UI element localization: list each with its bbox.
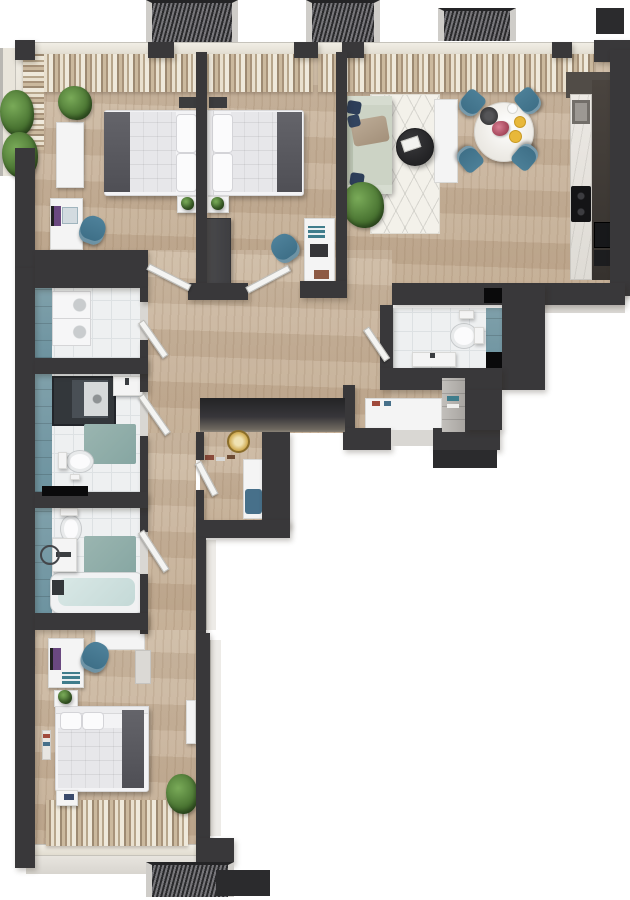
- bedroom2-pillow: [212, 114, 233, 153]
- bedroom2-nightstand-plant-icon: [211, 197, 224, 210]
- floor-plan-scene: [0, 0, 630, 900]
- shelf-item-icon: [447, 404, 459, 408]
- bedroom3-side-unit: [135, 650, 151, 684]
- bedroom2-ledge-tray: [209, 97, 227, 108]
- dryer-icon: [52, 318, 91, 346]
- wall-east: [610, 50, 630, 296]
- toilet-brush-icon: [70, 474, 80, 480]
- bedroom1-pillow: [176, 153, 197, 192]
- wall-pier: [294, 42, 318, 58]
- wall-corridor-west-3: [140, 436, 148, 532]
- laundry-teal-wall: [35, 288, 52, 358]
- wc-cistern: [459, 310, 474, 319]
- magazine-icon: [43, 734, 50, 738]
- balcony-plant-icon: [0, 90, 34, 136]
- faucet-icon: [430, 353, 435, 358]
- top-balcony-3: [438, 8, 516, 41]
- kitchen-cooktop: [571, 186, 591, 222]
- wall-wc-south: [380, 368, 502, 390]
- bottom-balcony-slab: [216, 870, 270, 896]
- washer-icon: [52, 291, 91, 319]
- bathroom1-toilet: [66, 450, 94, 473]
- bedroom1-bed-throw: [104, 112, 130, 192]
- bedroom2-laptop-icon: [310, 244, 328, 257]
- corridor-floor: [148, 433, 196, 635]
- wc-toilet-tank: [474, 327, 484, 344]
- top-balcony-2: [306, 0, 380, 45]
- plate-icon: [507, 103, 518, 114]
- wall-bedroom1-south: [35, 250, 148, 288]
- bathtub-basin: [58, 578, 135, 606]
- bench-cushion: [245, 489, 262, 514]
- bedroom1-monitor-icon: [51, 206, 61, 226]
- bedroom3-pillow: [60, 712, 82, 730]
- bedroom1-dresser: [56, 122, 84, 188]
- bedroom1-ledge-tray: [179, 97, 197, 108]
- wall-vestibule-east: [262, 432, 290, 528]
- wall-pier: [148, 42, 174, 58]
- wall-bedroom3-corner: [196, 838, 234, 864]
- tv-sideboard: [434, 99, 458, 183]
- microwave-icon: [594, 250, 610, 266]
- bathroom1-toilet-tank: [58, 452, 67, 469]
- wall-entry-east-block: [465, 390, 502, 430]
- wall-entry-south-w: [343, 428, 391, 450]
- magazine-icon: [43, 742, 50, 746]
- shelf-item-icon: [447, 396, 459, 401]
- bedroom3-nightstand-plant-icon: [58, 690, 72, 704]
- wall-west-upper: [15, 148, 35, 268]
- top-right-ledge: [596, 8, 624, 34]
- bedroom3-monitor-icon: [50, 648, 61, 670]
- living-curtains: [318, 54, 594, 92]
- decor-item-icon: [384, 401, 391, 406]
- book-icon: [64, 794, 74, 800]
- bedroom3-books-icon: [62, 672, 80, 684]
- exterior-sliver: [206, 540, 216, 630]
- bedroom2-book-icon: [314, 270, 329, 279]
- bathroom1-teal-wall: [35, 374, 52, 492]
- wall-vestibule-south: [196, 520, 290, 538]
- wall-bath2-bedroom3: [35, 613, 148, 630]
- bathroom2-toilet-tank: [60, 508, 78, 516]
- bedroom3-bed-duvet: [58, 728, 122, 788]
- bedroom2-bed-duvet: [231, 112, 277, 192]
- exterior-sliver: [210, 640, 221, 836]
- bedroom3-pillow: [82, 712, 104, 730]
- wall-bedroom3-east: [196, 633, 210, 858]
- wall-bedroom2-south-w: [188, 283, 248, 300]
- shoe-icon: [216, 457, 225, 461]
- bedroom3-plant-icon: [166, 774, 198, 814]
- shoe-icon: [205, 455, 214, 460]
- wall-bedroom2-south-e: [300, 281, 347, 298]
- wall-pier: [552, 42, 572, 58]
- bedroom1-laptop-icon: [62, 207, 78, 224]
- wall-laundry-bath1: [35, 358, 148, 374]
- faucet-icon: [125, 378, 129, 385]
- bedroom2-wardrobe: [204, 218, 231, 288]
- duct-shaft: [484, 288, 502, 303]
- living-plant-icon: [342, 182, 384, 228]
- bedroom3-bed-throw: [122, 710, 144, 788]
- wall-vestibule-west-1: [196, 432, 204, 460]
- wall-bedroom2-living: [336, 52, 347, 282]
- decor-item-icon: [372, 401, 380, 406]
- wall-west-column: [15, 268, 35, 868]
- bedroom1-nightstand-plant-icon: [181, 197, 194, 210]
- hall-built-in-closet: [200, 398, 345, 432]
- plate-icon: [514, 116, 526, 128]
- shower-tray: [84, 382, 108, 416]
- wall-corridor-east-low: [196, 538, 206, 635]
- plate-icon: [509, 130, 522, 143]
- bedroom1-plant-icon: [58, 86, 92, 120]
- bathtub-faucet-icon: [52, 580, 64, 595]
- bedroom1-bed-duvet: [130, 112, 176, 192]
- kitchen-sink: [572, 100, 590, 124]
- wall-corner-nw: [15, 40, 35, 60]
- bedroom2-bed-throw: [277, 112, 302, 192]
- bedroom1-pillow: [176, 114, 197, 153]
- entry-door-threshold: [391, 430, 433, 446]
- bedroom2-pillow: [212, 153, 233, 192]
- bedroom3-curtains: [46, 800, 188, 846]
- wall-corridor-west-1: [140, 288, 148, 302]
- bedrooms-curtains: [23, 54, 313, 92]
- bedroom3-sideboard: [186, 700, 196, 744]
- duct-shaft: [486, 352, 502, 368]
- navy-pillow-icon: [346, 100, 362, 115]
- towel-ring-icon: [40, 545, 60, 565]
- entry-porch-stub: [433, 450, 497, 468]
- shoe-icon: [227, 455, 235, 459]
- wall-bedroom-divider: [196, 52, 207, 283]
- wall-wc-east-block: [502, 285, 545, 390]
- wall-niche: [42, 486, 88, 496]
- bedroom2-books-icon: [308, 226, 325, 238]
- gold-mirror-icon: [227, 430, 250, 453]
